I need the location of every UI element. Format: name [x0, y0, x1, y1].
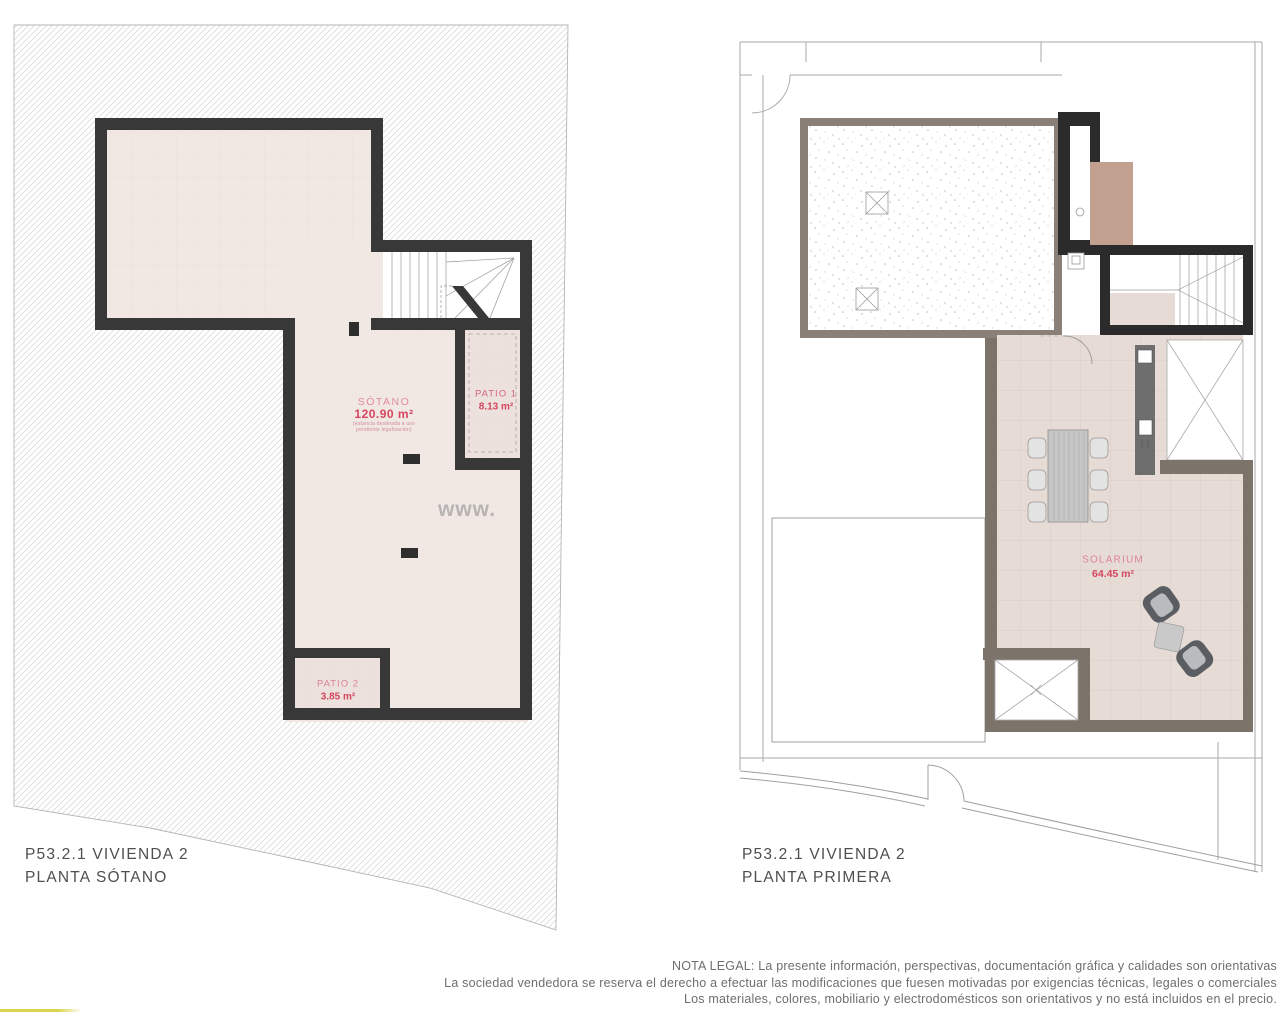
basement-plan — [14, 25, 568, 930]
patio2-name: PATIO 2 — [317, 679, 359, 690]
first-floor-plan — [740, 42, 1262, 872]
counter — [1135, 345, 1155, 475]
terrace — [800, 118, 1062, 338]
void-x — [1167, 340, 1243, 460]
tan-block — [1090, 162, 1133, 245]
stairwell — [1068, 245, 1253, 335]
entry-door-arc — [752, 75, 790, 113]
void-room — [772, 518, 985, 742]
legal-line1: NOTA LEGAL: La presente información, per… — [444, 958, 1277, 975]
plans-drawing — [0, 0, 1280, 1024]
gate-arc — [928, 765, 964, 801]
basement-title-line2: PLANTA SÓTANO — [25, 866, 189, 889]
side-table — [1154, 622, 1185, 653]
patio1-area: 8.13 m² — [479, 402, 513, 413]
sotano-area: 120.90 m² — [354, 407, 413, 421]
yellow-accent-bar — [0, 1009, 82, 1012]
skylight — [995, 660, 1078, 720]
first-floor-title-line2: PLANTA PRIMERA — [742, 866, 906, 889]
legal-line3: Los materiales, colores, mobiliario y el… — [444, 991, 1277, 1008]
floorplan-sheet: SÓTANO 120.90 m² (estancia destinada a u… — [0, 0, 1280, 1024]
basement-title-line1: P53.2.1 VIVIENDA 2 — [25, 843, 189, 866]
legal-line2: La sociedad vendedora se reserva el dere… — [444, 975, 1277, 992]
first-floor-title-line1: P53.2.1 VIVIENDA 2 — [742, 843, 906, 866]
basement-stair — [383, 252, 520, 318]
solarium-name: SOLARIUM — [1082, 555, 1144, 566]
solarium-area: 64.45 m² — [1092, 568, 1134, 580]
first-floor-title: P53.2.1 VIVIENDA 2 PLANTA PRIMERA — [742, 843, 906, 889]
patio2-area: 3.85 m² — [321, 692, 355, 703]
basement-title: P53.2.1 VIVIENDA 2 PLANTA SÓTANO — [25, 843, 189, 889]
sotano-note2: pendiente legalización) — [356, 427, 412, 433]
legal-note: NOTA LEGAL: La presente información, per… — [444, 958, 1277, 1008]
dining-set — [1028, 430, 1108, 522]
patio1-name: PATIO 1 — [475, 389, 517, 400]
watermark: www. — [438, 498, 496, 522]
